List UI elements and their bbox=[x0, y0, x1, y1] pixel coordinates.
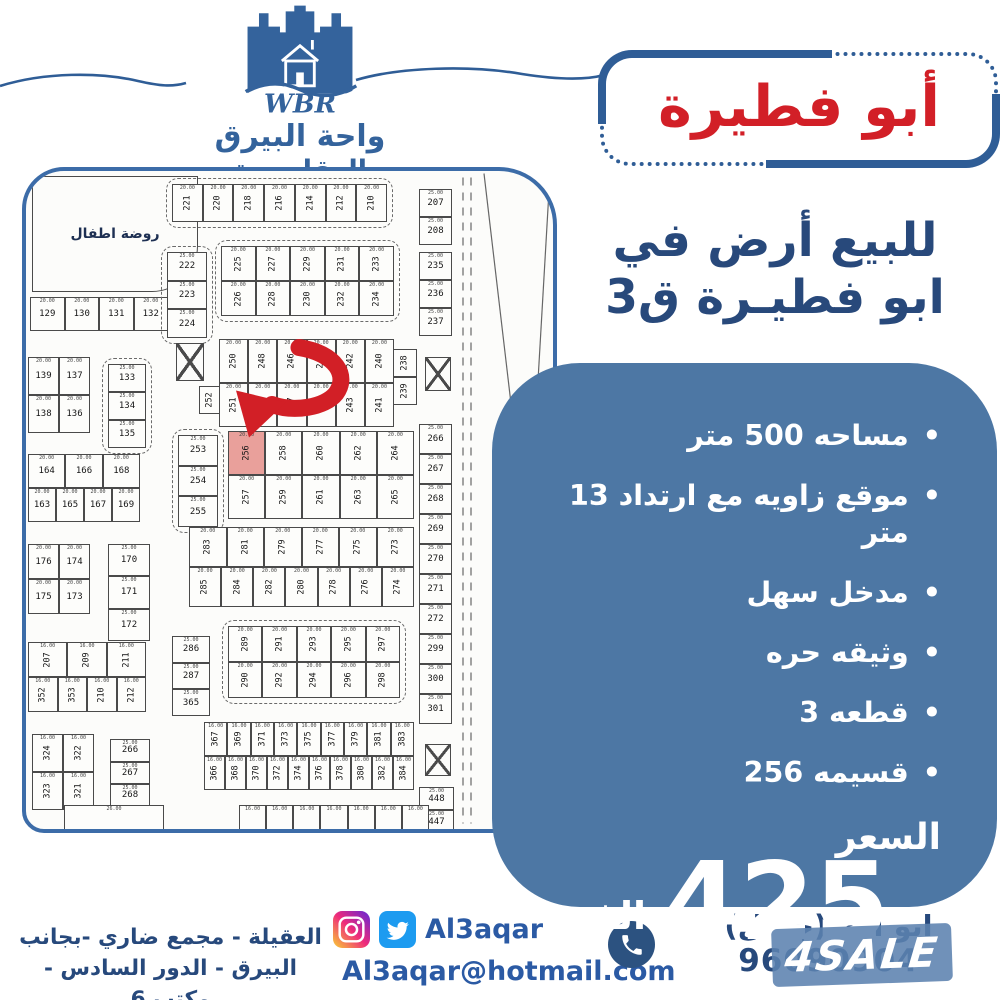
feature-item: •وثيقه حره bbox=[522, 634, 941, 671]
plot-234: 20.00234 bbox=[359, 281, 394, 316]
plot-373: 16.00373 bbox=[274, 722, 297, 756]
plot-233: 20.00233 bbox=[359, 246, 394, 281]
plot-168: 20.00168 bbox=[103, 454, 140, 488]
plot-227: 20.00227 bbox=[256, 246, 291, 281]
plot-169: 20.00169 bbox=[112, 488, 140, 522]
plot-207: 25.00207 bbox=[419, 189, 452, 217]
plot-222: 25.00222 bbox=[167, 252, 207, 281]
plot-372: 16.00372 bbox=[267, 756, 288, 790]
plot-250: 20.00250 bbox=[219, 339, 248, 383]
plot-235: 25.00235 bbox=[419, 252, 452, 280]
plot-352: 16.00352 bbox=[28, 677, 58, 712]
instagram-icon[interactable] bbox=[333, 911, 370, 948]
plot-279: 20.00279 bbox=[264, 527, 302, 567]
plot-257: 20.00257 bbox=[228, 475, 265, 519]
plot-382: 16.00382 bbox=[372, 756, 393, 790]
plot-block: 25.0017025.0017125.00172 bbox=[108, 544, 150, 641]
plot-248: 20.00248 bbox=[248, 339, 277, 383]
plot-251: 20.00251 bbox=[219, 383, 248, 427]
plot-256: 20.00256 bbox=[228, 431, 265, 475]
plot-383: 16.00383 bbox=[391, 722, 414, 756]
plot-241: 20.00241 bbox=[365, 383, 394, 427]
plot-cell: 16.00 bbox=[348, 805, 375, 829]
plot-block: 20.0016420.0016620.0016820.0016320.00165… bbox=[28, 454, 140, 522]
plot-324: 16.00324 bbox=[32, 734, 63, 772]
plot-172: 25.00172 bbox=[108, 609, 150, 641]
plot-130: 20.00130 bbox=[65, 297, 100, 331]
feature-item: •قسيمه 256 bbox=[522, 754, 941, 791]
plot-261: 20.00261 bbox=[302, 475, 339, 519]
title-box: أبو فطيرة bbox=[600, 52, 998, 166]
plot-375: 16.00375 bbox=[297, 722, 320, 756]
plot-290: 20.00290 bbox=[228, 662, 262, 698]
plot-377: 16.00377 bbox=[321, 722, 344, 756]
plot-300: 25.00300 bbox=[419, 664, 452, 694]
plot-270: 25.00270 bbox=[419, 544, 452, 574]
plot-268: 25.00268 bbox=[419, 484, 452, 514]
plot-267: 25.00267 bbox=[110, 762, 150, 785]
plot-278: 20.00278 bbox=[318, 567, 350, 607]
plot-block: 16.0032416.0032216.0032316.00321 bbox=[32, 734, 94, 810]
plot-293: 20.00293 bbox=[297, 626, 331, 662]
plot-cell: 26.00 bbox=[64, 805, 164, 829]
plot-block: 25.0023525.0023625.00237 bbox=[419, 252, 452, 336]
plot-166: 20.00166 bbox=[65, 454, 102, 488]
plot-block: 20.0022520.0022720.0022920.0023120.00233… bbox=[221, 246, 394, 316]
plot-136: 20.00136 bbox=[59, 395, 90, 433]
map-panel: روضة اطفال20.0022120.0022020.0021820.002… bbox=[22, 167, 557, 833]
plot-163: 20.00163 bbox=[28, 488, 56, 522]
plot-271: 25.00271 bbox=[419, 574, 452, 604]
plot-129: 20.00129 bbox=[30, 297, 65, 331]
plot-block: 20.0025020.0024820.0024620.0024420.00242… bbox=[219, 339, 394, 427]
plot-block: 20.0025620.0025820.0026020.0026220.00264… bbox=[228, 431, 414, 519]
plot-296: 20.00296 bbox=[331, 662, 365, 698]
plot-block: 26.00 bbox=[64, 805, 164, 829]
plot-134: 25.00134 bbox=[108, 392, 146, 420]
office-address: العقيلة - مجمع ضاري -بجانب البيرق - الدو… bbox=[18, 922, 323, 1000]
plot-164: 20.00164 bbox=[28, 454, 65, 488]
plot-139: 20.00139 bbox=[28, 357, 59, 395]
plot-247: 20.00247 bbox=[277, 383, 306, 427]
plot-297: 20.00297 bbox=[366, 626, 400, 662]
plot-176: 20.00176 bbox=[28, 544, 59, 579]
feature-item: •مدخل سهل bbox=[522, 574, 941, 611]
plot-218: 20.00218 bbox=[233, 184, 264, 222]
plot-367: 16.00367 bbox=[204, 722, 227, 756]
plot-258: 20.00258 bbox=[265, 431, 302, 475]
plot-282: 20.00282 bbox=[253, 567, 285, 607]
plot-322: 16.00322 bbox=[63, 734, 94, 772]
plot-245: 20.00245 bbox=[307, 383, 336, 427]
plot-224: 25.00224 bbox=[167, 309, 207, 338]
plot-260: 20.00260 bbox=[302, 431, 339, 475]
plot-291: 20.00291 bbox=[262, 626, 296, 662]
plot-210: 16.00210 bbox=[87, 677, 117, 712]
plot-285: 20.00285 bbox=[189, 567, 221, 607]
headline-line2: ابو فطيـرة ق3 bbox=[555, 269, 995, 326]
plot-374: 16.00374 bbox=[288, 756, 309, 790]
plot-211: 16.00211 bbox=[107, 642, 146, 677]
feature-list: •مساحه 500 متر•موقع زاويه مع ارتداد 13 م… bbox=[522, 417, 941, 791]
plot-cell: 16.00 bbox=[375, 805, 402, 829]
plot-210: 20.00210 bbox=[356, 184, 387, 222]
plot-281: 20.00281 bbox=[227, 527, 265, 567]
plot-214: 20.00214 bbox=[295, 184, 326, 222]
plot-381: 16.00381 bbox=[367, 722, 390, 756]
brand-logo: WBR واحة البيرق العقاريـــة bbox=[185, 2, 415, 186]
brand-name-line1: واحة البيرق bbox=[185, 120, 415, 155]
plot-165: 20.00165 bbox=[56, 488, 84, 522]
plot-231: 20.00231 bbox=[325, 246, 360, 281]
plot-block: 25.0013325.0013425.00135 bbox=[108, 364, 146, 448]
plot-135: 25.00135 bbox=[108, 420, 146, 448]
plot-207: 16.00207 bbox=[28, 642, 67, 677]
headline-line1: للبيع أرض في bbox=[555, 212, 995, 269]
plot-369: 16.00369 bbox=[227, 722, 250, 756]
flyer-root: WBR واحة البيرق العقاريـــة أبو فطيرة لل… bbox=[0, 0, 1000, 1000]
plot-block: 25.0025325.0025425.00255 bbox=[178, 435, 218, 527]
plot-cell: 16.00 bbox=[402, 805, 429, 829]
plot-243: 20.00243 bbox=[336, 383, 365, 427]
plot-263: 20.00263 bbox=[340, 475, 377, 519]
plot-220: 20.00220 bbox=[203, 184, 234, 222]
plot-264: 20.00264 bbox=[377, 431, 414, 475]
plot-371: 16.00371 bbox=[251, 722, 274, 756]
twitter-icon[interactable] bbox=[379, 911, 416, 948]
plot-289: 20.00289 bbox=[228, 626, 262, 662]
plot-block: 25.0022225.0022325.00224 bbox=[167, 252, 207, 338]
plot-block: 20.0013920.0013720.0013820.00136 bbox=[28, 357, 90, 433]
plot-237: 25.00237 bbox=[419, 308, 452, 336]
plot-239: 239 bbox=[393, 377, 417, 405]
plot-block: 16.0020716.0020916.0021116.0035216.00353… bbox=[28, 642, 146, 712]
plot-225: 20.00225 bbox=[221, 246, 256, 281]
plot-266: 25.00266 bbox=[110, 739, 150, 762]
plot-267: 25.00267 bbox=[419, 454, 452, 484]
feature-item: •قطعه 3 bbox=[522, 694, 941, 731]
plot-228: 20.00228 bbox=[256, 281, 291, 316]
brand-initials: WBR bbox=[264, 90, 336, 120]
feature-item: •مساحه 500 متر bbox=[522, 417, 941, 454]
plot-209: 16.00209 bbox=[67, 642, 106, 677]
plot-294: 20.00294 bbox=[297, 662, 331, 698]
plot-block: 16.0036716.0036916.0037116.0037316.00375… bbox=[204, 722, 414, 790]
plot-365: 25.00365 bbox=[172, 689, 210, 716]
plot-253: 25.00253 bbox=[178, 435, 218, 466]
plot-171: 25.00171 bbox=[108, 576, 150, 608]
headline: للبيع أرض في ابو فطيـرة ق3 bbox=[555, 212, 995, 327]
plot-280: 20.00280 bbox=[285, 567, 317, 607]
plot-379: 16.00379 bbox=[344, 722, 367, 756]
address-line1: العقيلة - مجمع ضاري -بجانب bbox=[18, 922, 323, 953]
plot-block: 16.0016.0016.0016.0016.0016.0016.00 bbox=[239, 805, 429, 829]
plot-368: 16.00368 bbox=[225, 756, 246, 790]
plot-132: 20.00132 bbox=[134, 297, 169, 331]
plot-block: 20.0017620.0017420.0017520.00173 bbox=[28, 544, 90, 614]
plot-block: 238239 bbox=[393, 349, 417, 405]
plot-221: 20.00221 bbox=[172, 184, 203, 222]
plot-133: 25.00133 bbox=[108, 364, 146, 392]
plot-212: 20.00212 bbox=[326, 184, 357, 222]
plot-175: 20.00175 bbox=[28, 579, 59, 614]
plot-277: 20.00277 bbox=[302, 527, 340, 567]
plot-380: 16.00380 bbox=[351, 756, 372, 790]
plot-384: 16.00384 bbox=[393, 756, 414, 790]
castle-icon: WBR bbox=[238, 2, 362, 120]
plot-284: 20.00284 bbox=[221, 567, 253, 607]
info-panel: •مساحه 500 متر•موقع زاويه مع ارتداد 13 م… bbox=[492, 363, 997, 907]
plot-244: 20.00244 bbox=[307, 339, 336, 383]
plot-266: 25.00266 bbox=[419, 424, 452, 454]
plot-240: 20.00240 bbox=[365, 339, 394, 383]
plot-216: 20.00216 bbox=[264, 184, 295, 222]
plot-378: 16.00378 bbox=[330, 756, 351, 790]
plot-block: 252 bbox=[199, 386, 221, 414]
plot-259: 20.00259 bbox=[265, 475, 302, 519]
plot-230: 20.00230 bbox=[290, 281, 325, 316]
plot-131: 20.00131 bbox=[99, 297, 134, 331]
bullet-icon: • bbox=[923, 477, 941, 551]
plot-265: 20.00265 bbox=[377, 475, 414, 519]
plot-255: 25.00255 bbox=[178, 496, 218, 527]
price-unit: الف bbox=[574, 894, 647, 960]
plot-cell: 16.00 bbox=[266, 805, 293, 829]
plot-174: 20.00174 bbox=[59, 544, 90, 579]
plot-275: 20.00275 bbox=[339, 527, 377, 567]
area-title: أبو فطيرة bbox=[658, 74, 940, 140]
plot-273: 20.00273 bbox=[377, 527, 415, 567]
plot-287: 25.00287 bbox=[172, 663, 210, 690]
plot-block: 25.0028625.0028725.00365 bbox=[172, 636, 210, 716]
watermark-text: 4SALE bbox=[783, 928, 942, 982]
plot-170: 25.00170 bbox=[108, 544, 150, 576]
plot-298: 20.00298 bbox=[366, 662, 400, 698]
plot-323: 16.00323 bbox=[32, 772, 63, 810]
plot-block: 20.0022120.0022020.0021820.0021620.00214… bbox=[172, 184, 387, 222]
plot-299: 25.00299 bbox=[419, 634, 452, 664]
plot-block: 25.0020725.00208 bbox=[419, 189, 452, 245]
plot-269: 25.00269 bbox=[419, 514, 452, 544]
plot-268: 25.00268 bbox=[110, 784, 150, 807]
plot-283: 20.00283 bbox=[189, 527, 227, 567]
plot-366: 16.00366 bbox=[204, 756, 225, 790]
plot-276: 20.00276 bbox=[350, 567, 382, 607]
plot-212: 16.00212 bbox=[117, 677, 147, 712]
feature-item: •موقع زاويه مع ارتداد 13 متر bbox=[522, 477, 941, 551]
plot-223: 25.00223 bbox=[167, 281, 207, 310]
watermark-badge: 4SALE bbox=[771, 923, 953, 987]
plot-cell: 16.00 bbox=[320, 805, 347, 829]
substation-box bbox=[425, 744, 451, 776]
plot-252: 252 bbox=[199, 386, 221, 414]
plot-246: 20.00246 bbox=[277, 339, 306, 383]
plot-208: 25.00208 bbox=[419, 217, 452, 245]
plot-229: 20.00229 bbox=[290, 246, 325, 281]
plot-286: 25.00286 bbox=[172, 636, 210, 663]
plot-301: 25.00301 bbox=[419, 694, 452, 724]
plot-236: 25.00236 bbox=[419, 280, 452, 308]
bullet-icon: • bbox=[923, 694, 941, 731]
plot-block: 20.0028320.0028120.0027920.0027720.00275… bbox=[189, 527, 414, 607]
plot-295: 20.00295 bbox=[331, 626, 365, 662]
bullet-icon: • bbox=[923, 417, 941, 454]
plot-226: 20.00226 bbox=[221, 281, 256, 316]
plot-block: 20.0012920.0013020.0013120.00132 bbox=[30, 297, 168, 331]
bullet-icon: • bbox=[923, 754, 941, 791]
plot-242: 20.00242 bbox=[336, 339, 365, 383]
substation-box bbox=[425, 357, 451, 391]
plot-138: 20.00138 bbox=[28, 395, 59, 433]
plot-376: 16.00376 bbox=[309, 756, 330, 790]
plot-137: 20.00137 bbox=[59, 357, 90, 395]
plot-block: 20.0028920.0029120.0029320.0029520.00297… bbox=[228, 626, 400, 698]
bullet-icon: • bbox=[923, 574, 941, 611]
substation-box bbox=[176, 343, 204, 381]
plot-274: 20.00274 bbox=[382, 567, 414, 607]
plot-254: 25.00254 bbox=[178, 466, 218, 497]
plot-238: 238 bbox=[393, 349, 417, 377]
plot-232: 20.00232 bbox=[325, 281, 360, 316]
plot-249: 20.00249 bbox=[248, 383, 277, 427]
plot-167: 20.00167 bbox=[84, 488, 112, 522]
plot-262: 20.00262 bbox=[340, 431, 377, 475]
plot-353: 16.00353 bbox=[58, 677, 88, 712]
plot-block: 25.0026625.0026725.0026825.0026925.00270… bbox=[419, 424, 452, 724]
plot-292: 20.00292 bbox=[262, 662, 296, 698]
plot-cell: 16.00 bbox=[239, 805, 266, 829]
bullet-icon: • bbox=[923, 634, 941, 671]
plot-cell: 16.00 bbox=[293, 805, 320, 829]
address-line2: البيرق - الدور السادس - مكتب 6 bbox=[18, 953, 323, 1000]
plot-272: 25.00272 bbox=[419, 604, 452, 634]
plot-370: 16.00370 bbox=[246, 756, 267, 790]
plot-173: 20.00173 bbox=[59, 579, 90, 614]
